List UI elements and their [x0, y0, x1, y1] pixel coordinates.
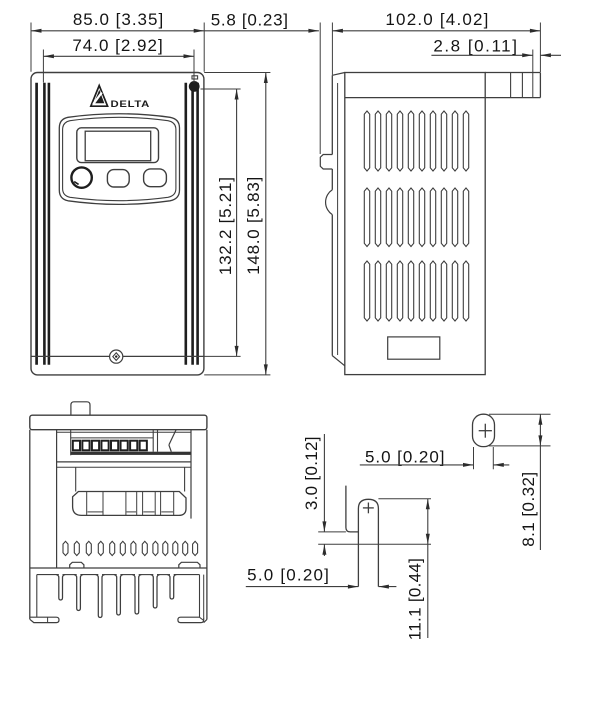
- svg-text:102.0 [4.02]: 102.0 [4.02]: [385, 10, 489, 29]
- svg-text:5.0 [0.20]: 5.0 [0.20]: [247, 566, 330, 585]
- svg-text:5.8 [0.23]: 5.8 [0.23]: [211, 10, 289, 29]
- svg-text:132.2 [5.21]: 132.2 [5.21]: [216, 176, 235, 275]
- svg-text:DELTA: DELTA: [111, 100, 150, 110]
- svg-text:2.8 [0.11]: 2.8 [0.11]: [433, 36, 518, 55]
- svg-text:8.1 [0.32]: 8.1 [0.32]: [519, 471, 538, 546]
- svg-text:148.0 [5.83]: 148.0 [5.83]: [244, 176, 263, 275]
- svg-text:85.0 [3.35]: 85.0 [3.35]: [73, 10, 164, 29]
- svg-text:11.1 [0.44]: 11.1 [0.44]: [405, 558, 424, 640]
- svg-text:74.0 [2.92]: 74.0 [2.92]: [72, 36, 163, 55]
- svg-text:5.0 [0.20]: 5.0 [0.20]: [365, 448, 445, 467]
- svg-text:3.0 [0.12]: 3.0 [0.12]: [302, 436, 321, 510]
